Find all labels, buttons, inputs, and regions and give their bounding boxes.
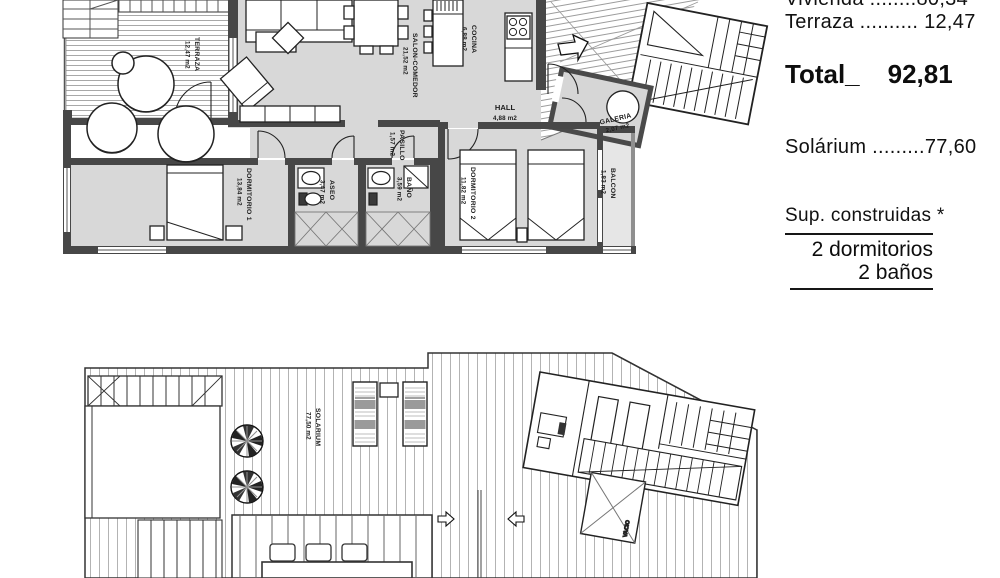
vacio-void: VACIO	[581, 472, 646, 543]
svg-text:3,47 m2: 3,47 m2	[319, 180, 326, 204]
plant-icon	[231, 471, 263, 503]
outdoor-table	[262, 562, 412, 578]
solarium-area-line: Solárium .........77,60	[785, 136, 976, 159]
chair	[342, 544, 367, 561]
svg-text:21,52 m2: 21,52 m2	[402, 47, 409, 75]
bedrooms-count: 2 dormitorios	[785, 238, 933, 262]
svg-text:13,84 m2: 13,84 m2	[236, 178, 243, 206]
vivienda-area-line: Vivienda ........80,34	[785, 0, 968, 11]
svg-text:ASEO: ASEO	[328, 180, 335, 200]
sun-lounger	[353, 382, 377, 446]
chair	[270, 544, 295, 561]
pergola-dining	[232, 515, 432, 578]
divider-line	[785, 233, 933, 235]
svg-text:1,57 m2: 1,57 m2	[389, 132, 396, 156]
lower-floor-plan: VACIO SOLARIUM 77,50 m2	[85, 352, 757, 578]
floorplan-sheet: TERRAZA 12,47 m2 SALON-COMEDOR 21,52 m2 …	[0, 0, 1000, 578]
svg-text:12,47 m2: 12,47 m2	[184, 41, 191, 69]
svg-text:6,88 m2: 6,88 m2	[461, 27, 468, 51]
svg-text:3,59 m2: 3,59 m2	[396, 177, 403, 201]
dining-table	[354, 0, 398, 46]
svg-text:SALON-COMEDOR: SALON-COMEDOR	[411, 33, 418, 98]
side-table	[380, 383, 398, 397]
svg-text:BAÑO: BAÑO	[405, 177, 414, 198]
double-bed	[167, 165, 223, 240]
divider-line	[790, 288, 933, 290]
svg-text:BALCON: BALCON	[609, 168, 616, 199]
svg-text:1,83 m2: 1,83 m2	[600, 170, 607, 194]
svg-text:DORMITORIO 1: DORMITORIO 1	[245, 168, 252, 221]
svg-text:COCINA: COCINA	[470, 25, 477, 53]
svg-text:PASILLO: PASILLO	[398, 130, 405, 161]
chair	[306, 544, 331, 561]
plant-icon	[231, 425, 263, 457]
stair-void	[85, 406, 220, 518]
svg-text:SOLARIUM: SOLARIUM	[314, 408, 321, 446]
built-surface-note: Sup. construidas *	[785, 205, 945, 227]
bathrooms-count: 2 baños	[785, 261, 933, 285]
sun-lounger	[403, 382, 427, 446]
total-label: Total_	[785, 59, 860, 89]
total-value: 92,81	[888, 59, 953, 89]
terraza-area-line: Terraza .......... 12,47	[785, 11, 976, 34]
svg-text:TERRAZA: TERRAZA	[193, 37, 200, 71]
svg-text:11,82 m2: 11,82 m2	[460, 177, 467, 205]
svg-text:DORMITORIO 2: DORMITORIO 2	[469, 167, 476, 220]
svg-text:4,88 m2: 4,88 m2	[493, 115, 517, 122]
surface-summary-panel: Vivienda ........80,34 Terraza .........…	[785, 0, 990, 578]
svg-text:HALL: HALL	[495, 103, 516, 112]
svg-text:77,50 m2: 77,50 m2	[305, 412, 312, 440]
total-area-line: Total_92,81	[785, 59, 953, 90]
upper-floor-plan: TERRAZA 12,47 m2 SALON-COMEDOR 21,52 m2 …	[63, 0, 767, 254]
